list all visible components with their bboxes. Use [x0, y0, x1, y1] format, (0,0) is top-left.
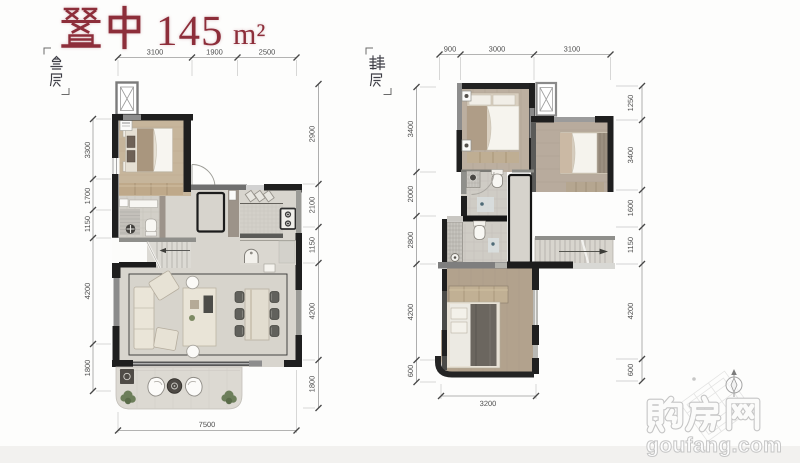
svg-text:4200: 4200 [626, 303, 635, 320]
svg-text:2800: 2800 [406, 232, 415, 249]
svg-text:1150: 1150 [83, 216, 92, 232]
svg-text:4200: 4200 [83, 283, 92, 300]
svg-text:1600: 1600 [626, 200, 635, 217]
svg-text:600: 600 [406, 365, 415, 378]
svg-text:900: 900 [444, 45, 457, 54]
svg-text:1800: 1800 [83, 360, 92, 377]
svg-text:1250: 1250 [626, 95, 635, 112]
svg-text:145: 145 [156, 8, 224, 55]
svg-text:m²: m² [233, 18, 265, 51]
svg-text:2000: 2000 [406, 186, 415, 203]
svg-text:2100: 2100 [308, 197, 317, 214]
svg-text:2900: 2900 [308, 126, 317, 143]
svg-text:3000: 3000 [489, 45, 506, 54]
svg-text:4200: 4200 [406, 304, 415, 321]
svg-text:3200: 3200 [480, 399, 497, 408]
svg-text:goufang.com: goufang.com [646, 434, 782, 457]
svg-text:3400: 3400 [626, 147, 635, 164]
svg-text:1150: 1150 [626, 237, 635, 253]
svg-text:3100: 3100 [564, 45, 581, 54]
svg-text:3400: 3400 [406, 121, 415, 138]
svg-text:1700: 1700 [83, 188, 92, 205]
svg-text:4200: 4200 [308, 303, 317, 320]
svg-text:1800: 1800 [308, 376, 317, 393]
svg-text:600: 600 [626, 364, 635, 377]
svg-text:1150: 1150 [308, 237, 317, 253]
svg-text:3300: 3300 [83, 142, 92, 159]
svg-text:7500: 7500 [199, 420, 216, 429]
